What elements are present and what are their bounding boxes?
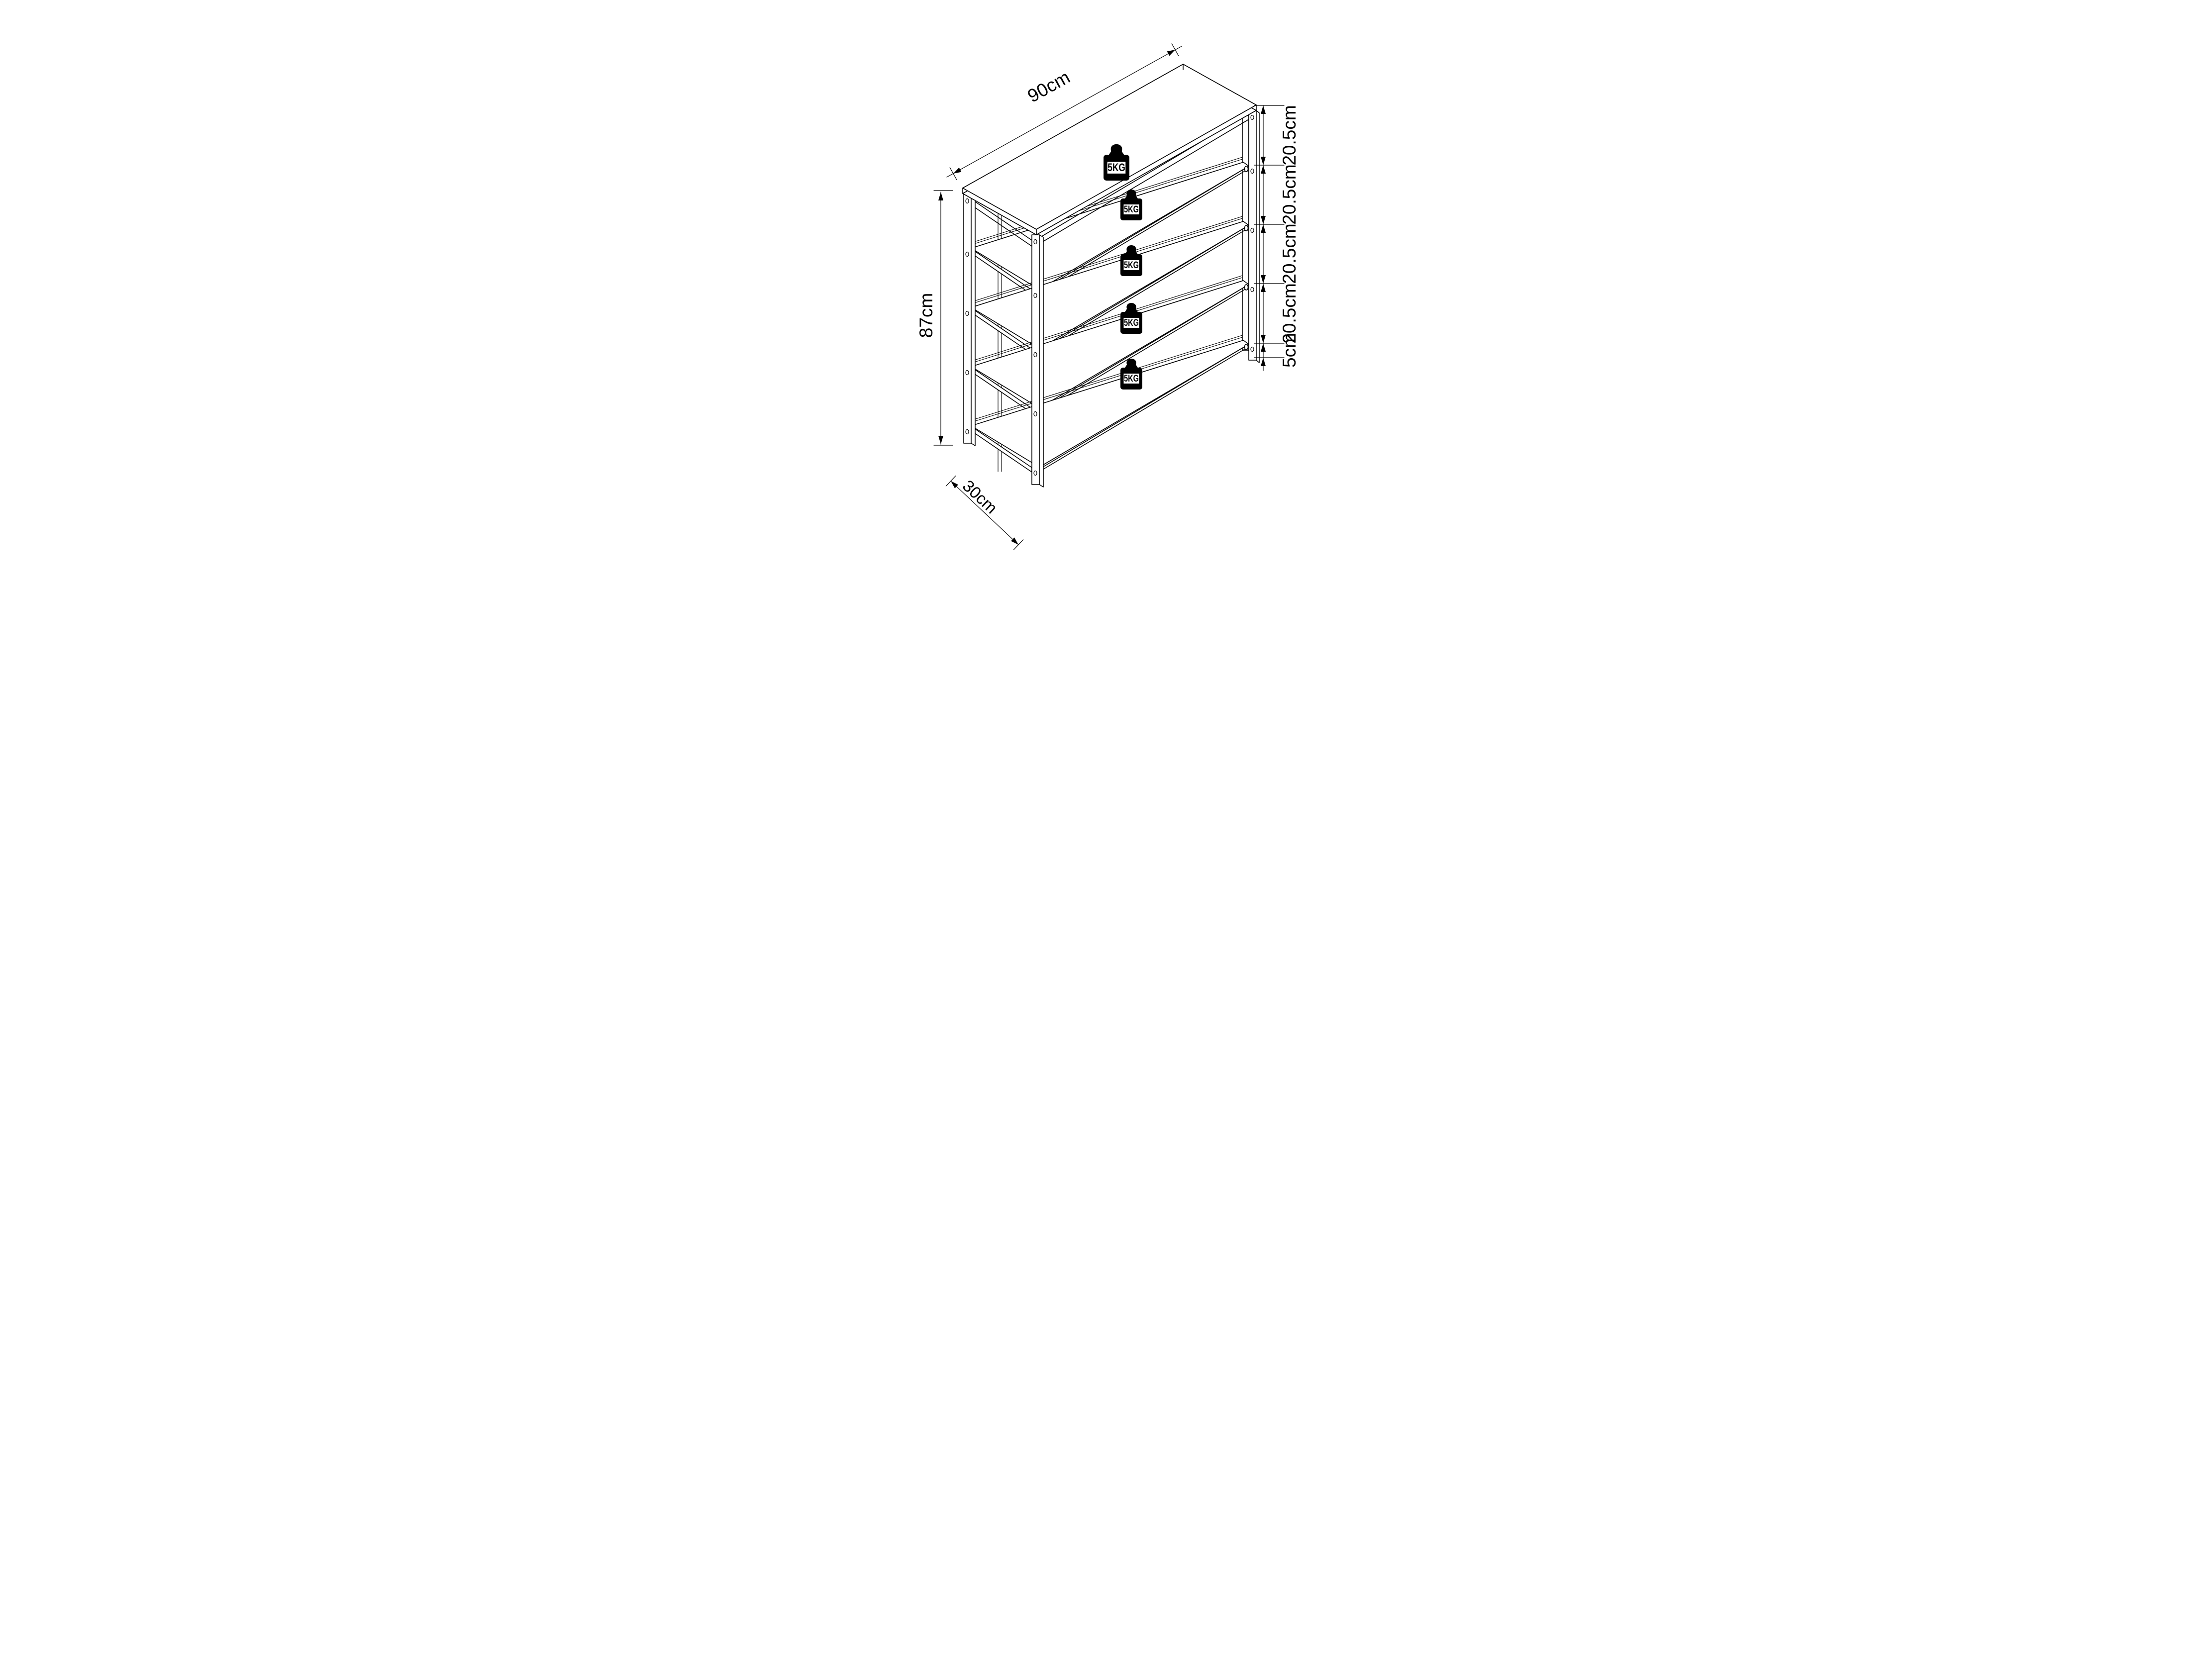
back-left-leg xyxy=(964,194,975,446)
back-right-leg xyxy=(1242,115,1249,351)
weight-icon-label: 5KG xyxy=(1124,374,1139,384)
height-dimension: 87cm xyxy=(916,191,953,445)
shelf-spacing-dimensions: 20.5cm 20.5cm 20.5cm 20.5cm 5cm xyxy=(1254,105,1300,371)
depth-dimension-label: 30cm xyxy=(959,477,1001,517)
weight-icon-4: 5KG xyxy=(1120,303,1142,334)
weight-icon-label: 5KG xyxy=(1124,318,1139,328)
spacing-label-2: 20.5cm xyxy=(1279,164,1300,224)
spacing-label-5: 5cm xyxy=(1279,333,1300,368)
shelf-unit-isometric-diagram: 90cm 87cm 30cm 20.5cm xyxy=(737,0,1475,553)
drawing-page: 90cm 87cm 30cm 20.5cm xyxy=(737,0,1475,553)
weight-icon-label: 5KG xyxy=(1124,204,1139,215)
weight-icon-label: 5KG xyxy=(1124,260,1139,271)
weight-icon-5: 5KG xyxy=(1120,359,1142,390)
weight-icon-2: 5KG xyxy=(1120,190,1142,220)
weight-icon-label: 5KG xyxy=(1107,161,1125,174)
spacing-label-1: 20.5cm xyxy=(1279,105,1300,165)
weight-icon-3: 5KG xyxy=(1120,245,1142,276)
front-right-leg xyxy=(1249,110,1259,363)
height-dimension-label: 87cm xyxy=(916,293,936,338)
width-dimension-label: 90cm xyxy=(1024,67,1073,106)
spacing-label-3: 20.5cm xyxy=(1279,223,1300,284)
depth-dimension: 30cm xyxy=(946,476,1023,550)
front-left-leg xyxy=(1032,235,1043,487)
